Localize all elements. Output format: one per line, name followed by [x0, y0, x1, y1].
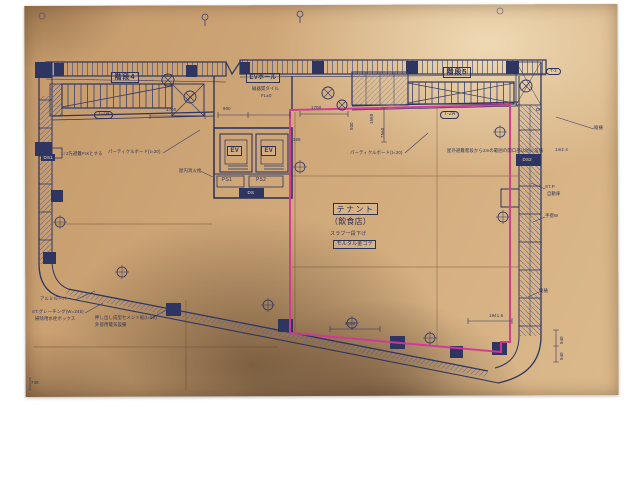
floor-level-note: FL±0 [261, 94, 272, 99]
df-note: DF [536, 108, 542, 113]
dim-1941: 1941.6 [489, 314, 503, 319]
grid-bubbles [39, 8, 503, 26]
board-note-right: パーティクルボード(t=20) [350, 151, 403, 156]
handrail-note: 手摺W [545, 214, 558, 219]
ds2-label: DS2 [520, 156, 534, 163]
dim-1700-right: 1700 [311, 106, 321, 111]
tenant-subtitle: （飲食店） [330, 217, 371, 226]
cement-panel-note-2: 外部用電気設備 [95, 323, 126, 328]
tenant-note-1: スラブ一段下げ [330, 232, 366, 238]
stair5-plan [352, 72, 518, 110]
ev-hall-label: EVホール [246, 73, 280, 83]
dim-540-lower: 540 [560, 352, 565, 360]
board-note-left: パーティクルボード(t=20) [108, 150, 161, 155]
stair4-plan [50, 84, 214, 120]
auto-door-note: 自動扉 [547, 192, 561, 197]
hydrant-note: 屋内消火栓 [179, 169, 201, 174]
bottom-wall [56, 289, 507, 383]
tenant-title: テナント [333, 203, 378, 215]
fix-window-note: 1↑2先避難FIXとする [61, 152, 103, 157]
fire-protection-note: 屋外避難階段から2mの範囲の開口部は防火設備 [447, 149, 543, 154]
right-wall [495, 62, 541, 383]
wall-tag-t2a-left: T-2A [94, 111, 113, 119]
dim-1m24: 1m2.4 [555, 148, 568, 153]
grating-note: ST.グレーチング(W=245) [32, 310, 84, 315]
dim-540-upper: 540 [560, 336, 565, 344]
tenant-note-2: モルタル金ゴテ [333, 240, 376, 249]
dim-900: 900 [223, 107, 231, 112]
wall-tag-corner: T-2 [546, 68, 561, 75]
floor-tile-note: 磁器質タイル [252, 87, 279, 92]
floor-plan-linework [0, 0, 640, 480]
downspout-note-upper: 縦樋 [594, 126, 603, 131]
ev1-label: EV [227, 146, 242, 156]
dim-748: 748 [31, 381, 39, 386]
downspout-note-lower: 縦樋 [539, 289, 548, 294]
dim-4100: 4100 [345, 322, 355, 327]
dim-365: 365 [293, 138, 301, 143]
dim-500: 500 [350, 122, 355, 130]
ps1-label: PS1 [222, 178, 232, 184]
dim-1580: 1580 [370, 114, 375, 124]
stair4-label: 階段4 [111, 72, 139, 83]
cement-panel-note: 押し出し成型セメント板(t=50) [95, 316, 157, 321]
wall-tag-t2a-right: T-2A [440, 111, 459, 119]
ds-label: DS [245, 189, 257, 196]
stair5-label: 階段5 [443, 67, 471, 78]
stp-note: ST.P [545, 185, 555, 190]
ev2-label: EV [261, 146, 276, 156]
photographed-floor-plan: 階段4 階段5 EVホール EV EV PS1 PS2 DS DS1 DS2 T… [0, 0, 640, 480]
louver-note: アルミルーバー [40, 297, 71, 302]
faucet-box-note: 掃除用水栓ボックス [35, 317, 75, 322]
ps2-label: PS2 [256, 178, 266, 184]
dim-7560: 7560 [381, 128, 386, 138]
tenant-highlight-outline [290, 105, 510, 352]
section-markers [53, 125, 510, 345]
ds1-label: DS1 [41, 154, 55, 161]
dim-1700-left: 1700 [166, 108, 176, 113]
